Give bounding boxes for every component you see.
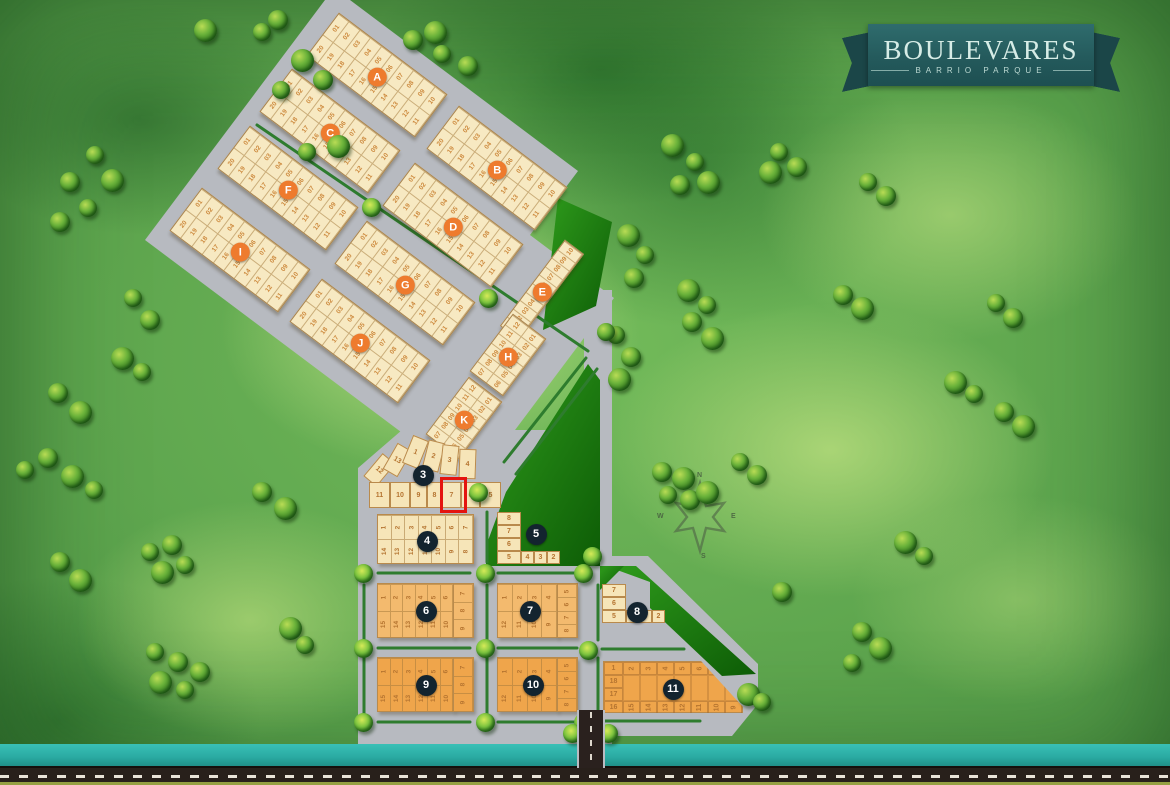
lot-cell: 15 xyxy=(378,611,391,638)
block-7: 1234121110956787 xyxy=(497,583,578,638)
tree-icon xyxy=(677,279,700,302)
tree-icon xyxy=(124,289,142,307)
tree-icon xyxy=(133,363,151,381)
tree-icon xyxy=(636,246,654,264)
lot-cell: 12 xyxy=(674,701,691,714)
lot-cell xyxy=(623,675,640,701)
development-logo: BOULEVARES BARRIO PARQUE xyxy=(840,18,1122,98)
block-label-11: 11 xyxy=(663,679,684,700)
lot-cell: 9 xyxy=(454,693,473,711)
lot-cell: 7 xyxy=(558,685,577,698)
lot-cell: 5 xyxy=(674,662,691,675)
block-label-K: K xyxy=(455,410,474,429)
tree-icon xyxy=(85,481,103,499)
lot-cell: 5 xyxy=(602,610,626,623)
street-tree-icon xyxy=(479,289,498,308)
lot-cell: 3 xyxy=(439,444,459,476)
block-7-end-column: 5678 xyxy=(557,583,578,638)
block-9-end-column: 789 xyxy=(453,657,474,712)
block-8: 7654328 xyxy=(602,584,654,639)
lot-cell: 2 xyxy=(391,584,404,611)
tree-icon xyxy=(111,347,134,370)
lot-cell: 14 xyxy=(391,611,404,638)
block-6-end-column: 789 xyxy=(453,583,474,638)
lot-cell: 1 xyxy=(378,658,391,685)
tree-icon xyxy=(686,153,704,171)
tree-icon xyxy=(253,23,271,41)
tree-icon xyxy=(296,636,314,654)
tree-icon xyxy=(851,297,874,320)
block-label-F: F xyxy=(279,180,298,199)
lot-cell: 7 xyxy=(459,515,473,539)
lot-cell: 3 xyxy=(405,515,419,539)
block-label-A: A xyxy=(368,67,387,86)
tree-icon xyxy=(61,465,84,488)
tree-icon xyxy=(759,161,782,184)
lot-cell: 10 xyxy=(390,482,410,508)
lot-cell: 9 xyxy=(410,482,427,508)
tree-icon xyxy=(617,224,640,247)
compass-north-label: N xyxy=(697,472,702,479)
lot-cell: 13 xyxy=(657,701,674,714)
tree-icon xyxy=(291,49,314,72)
block-label-B: B xyxy=(488,160,507,179)
lot-cell xyxy=(691,675,708,701)
tree-icon xyxy=(146,643,164,661)
tree-icon xyxy=(101,169,124,192)
block-label-9: 9 xyxy=(416,675,437,696)
lot-cell: 7 xyxy=(558,611,577,624)
street-tree-icon xyxy=(354,639,373,658)
lot-cell: 11 xyxy=(691,701,708,714)
lot-cell: 7 xyxy=(454,584,473,602)
block-6: 1234561514131211107896 xyxy=(377,583,474,638)
lot-cell: 8 xyxy=(558,698,577,711)
street-tree-icon xyxy=(362,198,381,217)
lot-cell: 5 xyxy=(558,584,577,597)
street-tree-icon xyxy=(579,641,598,660)
lot-cell: 6 xyxy=(497,538,521,551)
lot-cell: 14 xyxy=(640,701,657,714)
tree-icon xyxy=(69,569,92,592)
block-label-G: G xyxy=(396,275,415,294)
lot-cell: 3 xyxy=(403,584,416,611)
lot-cell: 14 xyxy=(378,539,392,563)
lot-cell: 10 xyxy=(708,701,725,714)
tree-icon xyxy=(176,556,194,574)
tree-icon xyxy=(424,21,447,44)
tree-icon xyxy=(149,671,172,694)
lot-cell: 5 xyxy=(558,658,577,671)
lot-cell: 10 xyxy=(441,685,454,712)
block-5: 87654325 xyxy=(497,512,561,565)
lot-cell: 1 xyxy=(498,658,513,685)
block-label-I: I xyxy=(231,242,250,261)
block-10-end-column: 5678 xyxy=(557,657,578,712)
block-label-7: 7 xyxy=(520,601,541,622)
lot-cell: 13 xyxy=(403,611,416,638)
lot-cell: 3 xyxy=(640,662,657,675)
tree-icon xyxy=(894,531,917,554)
lot-cell: 17 xyxy=(604,688,623,701)
lot-cell: 10 xyxy=(441,611,454,638)
lot-cell: 6 xyxy=(558,671,577,684)
block-label-6: 6 xyxy=(416,601,437,622)
lot-cell: 14 xyxy=(391,685,404,712)
ribbon-divider-right xyxy=(1053,70,1091,71)
lot-cell: 3 xyxy=(534,551,547,564)
tree-icon xyxy=(608,368,631,391)
lot-cell: 18 xyxy=(604,675,623,688)
ribbon-divider-left xyxy=(871,70,909,71)
street-tree-icon xyxy=(469,483,488,502)
lot-cell: 1 xyxy=(498,584,513,611)
lot-cell: 2 xyxy=(623,662,640,675)
lot-cell: 15 xyxy=(623,701,640,714)
lot-cell: 13 xyxy=(403,685,416,712)
tree-icon xyxy=(697,171,720,194)
block-label-D: D xyxy=(444,217,463,236)
tree-icon xyxy=(753,693,771,711)
tree-icon xyxy=(731,453,749,471)
tree-icon xyxy=(698,296,716,314)
lot-cell: 4 xyxy=(458,449,476,480)
block-4: 12345671413121110984 xyxy=(377,514,474,564)
tree-icon xyxy=(661,134,684,157)
lot-cell: 4 xyxy=(657,662,674,675)
tree-icon xyxy=(69,401,92,424)
lot-cell: 6 xyxy=(441,584,454,611)
lot-cell: 9 xyxy=(446,539,460,563)
lot-cell: 9 xyxy=(542,685,557,712)
lot-cell: 7 xyxy=(454,658,473,676)
lot-cell: 12 xyxy=(498,611,513,638)
street-tree-icon xyxy=(354,564,373,583)
lot-cell: 11 xyxy=(369,482,390,508)
lot-cell: 4 xyxy=(542,658,557,685)
compass-south-label: S xyxy=(701,553,706,560)
lot-cell: 6 xyxy=(441,658,454,685)
compass-west-label: W xyxy=(657,513,664,520)
logo-subtitle: BARRIO PARQUE xyxy=(915,66,1046,75)
lot-cell: 6 xyxy=(446,515,460,539)
tree-icon xyxy=(869,637,892,660)
block-label-J: J xyxy=(351,333,370,352)
tree-icon xyxy=(915,547,933,565)
lot-cell: 9 xyxy=(454,619,473,637)
tree-icon xyxy=(987,294,1005,312)
block-label-5: 5 xyxy=(526,524,547,545)
highlighted-lot xyxy=(440,477,467,513)
entrance-road xyxy=(577,710,605,768)
tree-icon xyxy=(701,327,724,350)
main-road xyxy=(0,766,1170,785)
lot-cell: 3 xyxy=(403,658,416,685)
lot-cell: 1 xyxy=(378,515,392,539)
compass-east-label: E xyxy=(731,513,736,520)
tree-icon xyxy=(696,481,719,504)
block-9: 1234561514131211107899 xyxy=(377,657,474,712)
tree-icon xyxy=(327,135,350,158)
tree-icon xyxy=(151,561,174,584)
lot-cell: 8 xyxy=(459,539,473,563)
lot-cell: 8 xyxy=(454,602,473,620)
tree-icon xyxy=(274,497,297,520)
logo-title: BOULEVARES xyxy=(883,36,1078,64)
tree-icon xyxy=(141,543,159,561)
lot-cell: 6 xyxy=(602,597,626,610)
lot-cell: 7 xyxy=(497,525,521,538)
street-tree-icon xyxy=(574,564,593,583)
tree-icon xyxy=(194,19,217,42)
tree-icon xyxy=(944,371,967,394)
lot-cell: 2 xyxy=(652,610,665,623)
street-tree-icon xyxy=(476,564,495,583)
tree-icon xyxy=(843,654,861,672)
tree-icon xyxy=(672,467,695,490)
block-label-8: 8 xyxy=(627,602,648,623)
tree-icon xyxy=(86,146,104,164)
block-10: 12341211109567810 xyxy=(497,657,578,712)
lot-cell: 2 xyxy=(547,551,560,564)
lot-cell: 1 xyxy=(378,584,391,611)
street-tree-icon xyxy=(583,547,602,566)
lot-cell: 4 xyxy=(542,584,557,611)
lot-cell xyxy=(640,675,657,701)
tree-icon xyxy=(16,461,34,479)
tree-icon xyxy=(279,617,302,640)
lot-cell: 7 xyxy=(602,584,626,597)
tree-icon xyxy=(176,681,194,699)
lot-cell: 1 xyxy=(604,662,623,675)
tree-icon xyxy=(770,143,788,161)
block-label-3: 3 xyxy=(413,465,434,486)
lot-cell: 16 xyxy=(604,701,623,714)
street-tree-icon xyxy=(476,713,495,732)
lot-cell: 12 xyxy=(498,685,513,712)
lot-cell: 2 xyxy=(391,658,404,685)
block-label-E: E xyxy=(533,282,552,301)
lot-cell: 9 xyxy=(542,611,557,638)
block-label-H: H xyxy=(499,347,518,366)
lot-cell: 8 xyxy=(454,676,473,694)
tree-icon xyxy=(272,81,290,99)
tree-icon xyxy=(859,173,877,191)
tree-icon xyxy=(433,45,451,63)
lot-cell: 2 xyxy=(392,515,406,539)
tree-icon xyxy=(79,199,97,217)
lot-cell: 8 xyxy=(497,512,521,525)
block-label-4: 4 xyxy=(417,531,438,552)
lot-cell: 4 xyxy=(521,551,534,564)
street-tree-icon xyxy=(476,639,495,658)
block-label-10: 10 xyxy=(523,675,544,696)
tree-icon xyxy=(1012,415,1035,438)
street-tree-icon xyxy=(354,713,373,732)
lot-cell: 5 xyxy=(497,551,521,564)
tree-icon xyxy=(659,486,677,504)
lot-cell: 13 xyxy=(392,539,406,563)
site-plan-map: N E S W 01020304050607080910201918171615… xyxy=(0,0,1170,785)
tree-icon xyxy=(965,385,983,403)
tree-icon xyxy=(597,323,615,341)
lot-cell: 15 xyxy=(378,685,391,712)
tree-icon xyxy=(298,143,316,161)
ribbon-banner: BOULEVARES BARRIO PARQUE xyxy=(868,24,1094,86)
lot-cell: 8 xyxy=(558,624,577,637)
lot-cell: 6 xyxy=(558,597,577,610)
